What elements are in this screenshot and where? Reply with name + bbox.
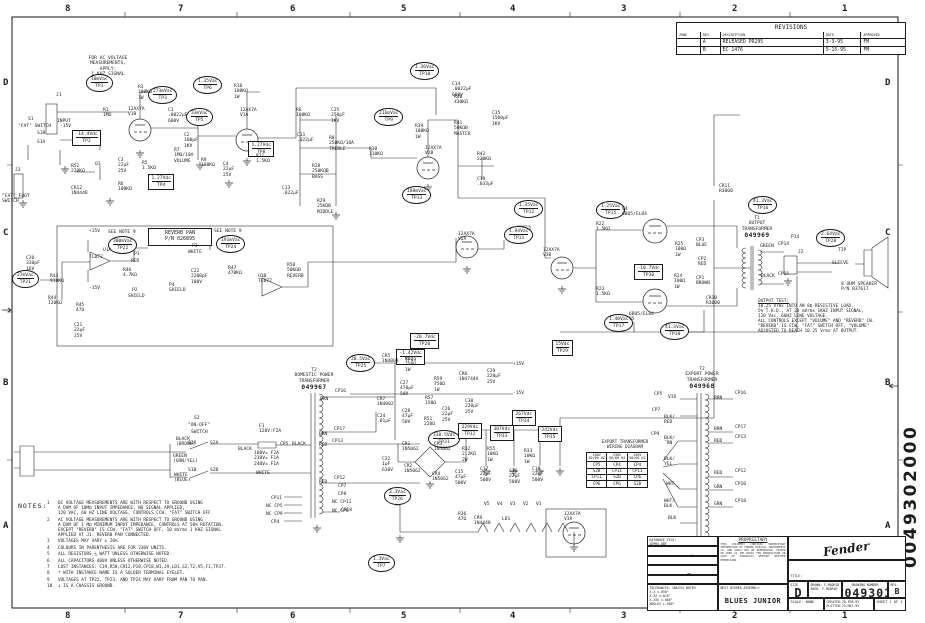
- schematic-label: CR11N5062: [402, 442, 419, 453]
- size-value: D: [791, 587, 806, 599]
- size-cell: SIZE D: [788, 581, 808, 598]
- schematic-label: "FAT" FOOTSWITCH: [2, 194, 30, 205]
- schematic-label: GREEN: [760, 244, 774, 249]
- testpoint-tp2: -14.4VdcTP2: [72, 130, 101, 146]
- schematic-label: C2622μF25V: [442, 407, 453, 423]
- zone-bottom-8: 8: [65, 611, 70, 621]
- note-item: 8* WITH INSTANCE NAME IS A SOLDER TERMIN…: [47, 571, 327, 576]
- schematic-label: S1B: [188, 468, 196, 473]
- revisions-title: REVISIONS: [676, 22, 906, 32]
- schematic-label: CP12: [334, 476, 345, 481]
- schematic-label: V46BQ5/EL84: [622, 207, 647, 218]
- schematic-label: CR121N4448: [71, 186, 88, 197]
- schematic-label: RED: [714, 439, 722, 444]
- schematic-label: C1547μF500V: [455, 470, 466, 486]
- drawing-title-cell: TITLE: SCHEMATIC DIAGRAM BLUES JUNIOR: [788, 560, 906, 581]
- schematic-label: VIO: [668, 395, 676, 400]
- schematic-label: WHITE: [188, 250, 202, 255]
- schematic-label: R42220KΩ: [477, 152, 491, 163]
- schematic-label: P2: [132, 288, 138, 293]
- zone-bottom-7: 7: [178, 611, 183, 621]
- note-number: 2: [47, 518, 50, 523]
- schematic-label: S1: [28, 117, 34, 122]
- zone-bottom-3: 3: [621, 611, 626, 621]
- revision-cell: 3-3-95: [824, 39, 862, 46]
- testpoint-tp11: 1.94VacTP11: [504, 226, 533, 244]
- schematic-label: -15V: [513, 391, 524, 396]
- notes-heading: NOTES:: [18, 502, 47, 510]
- schematic-label: +15V: [513, 362, 524, 367]
- schematic-label: R6100KΩ: [118, 182, 132, 193]
- revisions-header-cell: DATE: [824, 32, 862, 38]
- export-wiring-table: 100V50/60 HZ230V50/60 HZ240V50/60 HZCP5C…: [586, 452, 648, 488]
- schematic-label: RED: [714, 471, 722, 476]
- zone-right-B: B: [885, 378, 890, 388]
- revisions-header-cell: APPROVED: [861, 32, 905, 38]
- schematic-label: R51.5KΩ: [142, 161, 156, 172]
- export-table-cell: CP6: [607, 481, 627, 487]
- schematic-label: C222200pF100V: [191, 269, 208, 285]
- testpoint-tp3: 273mVacTP3: [148, 86, 177, 104]
- zone-bottom-2: 2: [732, 611, 737, 621]
- note-item: 3VOLTAGES MAY VARY ± 20%.: [47, 539, 327, 544]
- schematic-label: CR91N4448: [474, 516, 491, 527]
- schematic-label: 8 OHM SPEAKERP/N 037617: [841, 282, 877, 293]
- schematic-label: NC CP11: [332, 500, 351, 505]
- revisions-table: REVISIONSZONEREV.DESCRIPTIONDATEAPPROVED…: [676, 22, 906, 55]
- schematic-label: P1: [134, 252, 140, 257]
- schematic-label: C2100pF1KV: [184, 133, 198, 149]
- schematic-label: -15V: [60, 124, 71, 129]
- schematic-label: BLK/RED: [664, 415, 675, 426]
- next-higher-assembly-label: NEXT HIGHER ASSEMBLY:: [721, 586, 786, 590]
- schematic-label: BLK: [668, 516, 676, 521]
- schematic-label: C422μF25V: [223, 162, 234, 178]
- schematic-label: CR10R3000: [706, 296, 720, 307]
- schematic-label: S2B: [210, 468, 218, 473]
- schematic-label: R30110KΩ: [369, 147, 383, 158]
- schematic-label: C1822μF500V: [532, 467, 543, 483]
- drawing-number-cell: DRAWING NUMBER 049301: [842, 581, 888, 598]
- schematic-label: R3647Ω: [458, 512, 466, 523]
- drawn-by: DRAWN: F.MADRID: [811, 583, 840, 587]
- schematic-label: R464.7KΩ: [123, 268, 137, 279]
- next-higher-assembly-value: BLUES JUNIOR: [721, 597, 786, 605]
- testpoint-tp26: 3.3VacTP26: [384, 487, 411, 505]
- note-number: 3: [47, 539, 50, 544]
- revisions-header-cell: ZONE: [677, 32, 701, 38]
- schematic-label: C322μF25V: [118, 158, 129, 174]
- zone-right-D: D: [885, 78, 890, 88]
- title-label: TITLE:: [791, 574, 803, 578]
- export-table-cell: CP6: [587, 481, 607, 487]
- revision-cell: EC 1476: [721, 47, 824, 54]
- approved-cell: APPROVED:: [647, 565, 718, 575]
- revision-cell: A: [701, 39, 721, 46]
- testpoint-tp18: 41.3VacTP18: [660, 322, 689, 340]
- schematic-label: GREEN(GRN/YEL): [173, 454, 198, 465]
- schematic-label: R221.5KΩ: [596, 222, 610, 233]
- schematic-label: R47470KΩ: [228, 266, 242, 277]
- note-number: 8: [47, 571, 50, 576]
- schematic-label: T2DOMESTIC POWERTRANSFORMER049967: [284, 368, 344, 391]
- schematic-label: CP13: [735, 435, 746, 440]
- database-file-cell: DATABASE FILE: ZEM95.DBF: [647, 536, 718, 546]
- schematic-label: BRN: [714, 396, 722, 401]
- schematic-label: C321μF630V: [382, 457, 393, 473]
- zone-bottom-6: 6: [290, 611, 295, 621]
- database-file-value: ZEM95.DBF: [650, 542, 716, 546]
- schematic-label: BLACK: [761, 274, 775, 279]
- schematic-label: R322.2KΩ2W: [462, 447, 476, 463]
- note-number: 9: [47, 578, 50, 583]
- zone-top-2: 2: [732, 4, 737, 14]
- note-number: 1: [47, 501, 50, 506]
- schematic-label: CP5: [280, 442, 288, 447]
- schematic-label: C19.033μF: [477, 177, 494, 188]
- schematic-label: CR31N5062: [434, 442, 451, 453]
- schematic-label: CP12: [735, 469, 746, 474]
- scale-cell: SCALE: NONE: [788, 598, 824, 611]
- date-cell-1: DATE:: [647, 556, 718, 565]
- schematic-label: R71MΩ/10AVOLUME: [174, 148, 193, 164]
- zone-bottom-4: 4: [510, 611, 515, 621]
- note-item: 7LOST INSTANCES: C39,R58,CR12,P18,CP18,W…: [47, 565, 327, 570]
- note-item: 1DC VOLTAGE MEASUREMENTS ARE WITH RESPEC…: [47, 501, 327, 516]
- note-number: 7: [47, 565, 50, 570]
- schematic-label: R28250KΩBBASS: [312, 164, 329, 180]
- schematic-label: C13.022μF: [282, 186, 299, 197]
- schematic-label: R40430KΩ: [454, 95, 468, 106]
- note-number: 4: [47, 546, 50, 551]
- schematic-label: F1120V:F2A: [259, 424, 281, 435]
- testpoint-tp28: 2.64VacTP28: [816, 229, 845, 247]
- schematic-label: Q1: [95, 162, 101, 167]
- revisions-header-cell: DESCRIPTION: [721, 32, 824, 38]
- schematic-label: 100V= F2A230V= F1A240V= F1A: [254, 451, 279, 467]
- testpoint-tp15: 1.25VacTP15: [596, 201, 625, 219]
- schematic-label: SWITCH: [191, 430, 208, 435]
- schematic-label: 12AX7AV1B: [128, 107, 145, 118]
- schematic-label: CP13: [332, 439, 343, 444]
- note-number: 5: [47, 552, 50, 557]
- drawn-cell: DRAWN: F.MADRID ENGR: F.MADRID: [808, 581, 842, 598]
- schematic-label: P14: [791, 235, 799, 240]
- revision-cell: B: [701, 47, 721, 54]
- export-table-header: 230V50/60 HZ: [607, 453, 627, 462]
- schematic-label: WHT/BLK: [664, 499, 675, 510]
- proprietary-cell: PROPRIETARY THIS DOCUMENT CONTAINS PROPR…: [718, 536, 788, 584]
- schematic-label: CP14: [778, 242, 789, 247]
- revisions-header-cell: REV.: [701, 32, 721, 38]
- schematic-label: TL072: [89, 255, 103, 260]
- schematic-label: CP18: [735, 499, 746, 504]
- revision-row: BEC 14765-15-95FM: [676, 47, 906, 55]
- schematic-label: T2EXPORT POWERTRANSFORMER049968: [672, 367, 732, 390]
- testpoint-tp25: 20.5VacTP25: [346, 354, 375, 372]
- note-item: 2AC VOLTAGE MEASUREMENTS ARE WITH RESPEC…: [47, 518, 327, 538]
- schematic-label: R3310KΩ1W: [524, 449, 535, 465]
- schematic-label: R25100Ω1W: [675, 242, 686, 258]
- schematic-label: V3: [510, 502, 516, 507]
- schematic-label: SEE NOTE 9: [108, 230, 136, 235]
- schematic-label: WHT: [666, 482, 674, 487]
- schematic-label: CP15: [778, 272, 789, 277]
- schematic-label: CP1BROWN: [696, 276, 710, 287]
- schematic-label: R2925KΩBMIDDLE: [317, 199, 334, 215]
- revision-cell: FM: [861, 47, 905, 54]
- schematic-label: C20330pF16V: [26, 256, 40, 272]
- revision-cell: FM: [861, 39, 905, 46]
- zone-left-C: C: [3, 228, 8, 238]
- schematic-label: CR11R3000: [719, 184, 733, 195]
- scale-value: SCALE: NONE: [791, 600, 822, 605]
- schematic-label: S2A: [210, 441, 218, 446]
- schematic-label: R8250KΩ/10ATREBLE: [329, 136, 354, 152]
- schematic-label: R44120KΩ: [48, 296, 62, 307]
- testpoint-tp35: 242VdcTP35: [538, 426, 562, 442]
- schematic-label: TIP: [838, 248, 846, 253]
- schematic-label: -15V: [89, 286, 100, 291]
- schematic-label: R3100KΩ1W: [138, 85, 152, 101]
- schematic-label: C25250pF1KV: [331, 108, 345, 124]
- next-higher-assembly-cell: NEXT HIGHER ASSEMBLY: BLUES JUNIOR: [718, 584, 788, 611]
- tolerances-cell: TOLERANCES: UNLESS NOTED X.X ±.050" X.XX…: [647, 584, 718, 611]
- title-block: DATABASE FILE: ZEM95.DBF CHECKED BY: DAT…: [647, 536, 906, 611]
- export-table-header: 240V50/60 HZ: [627, 453, 647, 462]
- proprietary-text: THIS DOCUMENT CONTAINS PROPRIETARY INFOR…: [721, 543, 786, 562]
- revision-cell: RELEASED PR295: [721, 39, 824, 46]
- note-item: 6ALL CAPACITORS 400V UNLESS OTHERWISE NO…: [47, 559, 327, 564]
- drawing-number-value: 049301: [845, 587, 886, 599]
- testpoint-tp6: 1.35VacTP6: [193, 76, 222, 94]
- plotted-date: PLOTTED:23-MAY-95: [827, 604, 872, 608]
- schematic-label: SLEEVE: [832, 261, 849, 266]
- schematic-label: 12AX7AV2A: [458, 232, 475, 243]
- schematic-label: CP7: [338, 484, 346, 489]
- schematic-label: R5510KΩ1W: [487, 447, 498, 463]
- testpoint-tp7: 1.3VacTP7: [368, 554, 395, 572]
- export-table-header: 100V50/60 HZ: [587, 453, 607, 462]
- schematic-label: BLK/YEL: [664, 457, 675, 468]
- rev-value: B: [891, 587, 904, 596]
- reverb-pan-box: REVERB PANP/N 026895: [148, 228, 212, 246]
- schematic-label: S2: [194, 416, 200, 421]
- schematic-label: R5050KΩBREVERB: [287, 263, 304, 279]
- date-cell-2: DATE:: [647, 575, 718, 584]
- schematic-label: 12AX7AV3B: [543, 248, 560, 259]
- schematic-label: C27470μF50V: [400, 381, 414, 397]
- revisions-header-row: ZONEREV.DESCRIPTIONDATEAPPROVED: [676, 32, 906, 39]
- schematic-label: S1A: [37, 140, 45, 145]
- schematic-label: V1: [536, 502, 542, 507]
- schematic-label: BRN: [320, 397, 328, 402]
- schematic-label: CR71N4002: [377, 397, 394, 408]
- checked-by-cell: CHECKED BY:: [647, 546, 718, 556]
- note-number: 10: [47, 584, 52, 589]
- schematic-label: CP7: [652, 408, 660, 413]
- schematic-label: C1622μF500V: [509, 469, 520, 485]
- tolerance-line: ANGLES ±.500°: [650, 602, 716, 606]
- schematic-label: +15V: [89, 229, 100, 234]
- testpoint-tp10: 1.36VacTP10: [410, 62, 439, 80]
- schematic-label: P4SHIELD: [169, 283, 186, 294]
- schematic-label: R231.5KΩ: [596, 287, 610, 298]
- testpoint-tp33: 307VdcTP33: [490, 425, 514, 441]
- zone-top-1: 1: [842, 4, 847, 14]
- schematic-label: R9100KΩ: [201, 158, 215, 169]
- revision-cell: [677, 47, 701, 54]
- testpoint-tp20: -20.7VdcTP20: [410, 333, 439, 349]
- schematic-label: R51220Ω: [424, 417, 435, 428]
- testpoint-tp9: 216mVacTP9: [374, 108, 403, 126]
- schematic-label: V2: [523, 502, 529, 507]
- schematic-label: S1A: [188, 441, 196, 446]
- testpoint-tp21: 27mVacTP21: [12, 270, 39, 288]
- notes-list: 1DC VOLTAGE MEASUREMENTS ARE WITH RESPEC…: [47, 501, 327, 591]
- zone-right-C: C: [885, 228, 890, 238]
- zone-left-A: A: [3, 521, 8, 531]
- schematic-label: R111.5KΩ: [256, 154, 270, 165]
- testpoint-tp32: 329VdcTP32: [458, 423, 482, 439]
- zone-bottom-1: 1: [842, 611, 847, 621]
- schematic-label: CP8: [338, 492, 346, 497]
- schematic-label: BRN: [714, 427, 722, 432]
- schematic-label: R52750Ω1W: [405, 357, 416, 373]
- fender-logo: Fender: [822, 538, 870, 558]
- sheet-of: SHEET 1 OF 1: [877, 600, 904, 605]
- zone-left-D: D: [3, 78, 8, 88]
- schematic-label: R24100Ω1W: [674, 274, 685, 290]
- schematic-label: C30220μF25V: [465, 399, 479, 415]
- schematic-label: CP17: [334, 427, 345, 432]
- schematic-label: R52220KΩ: [71, 164, 85, 175]
- schematic-label: S1B: [37, 131, 45, 136]
- note-number: 6: [47, 559, 50, 564]
- schematic-label: CP3BLUE: [696, 238, 707, 249]
- zone-left-B: B: [3, 378, 8, 388]
- schematic-label: CP2RED: [698, 257, 706, 268]
- zone-right-A: A: [885, 521, 890, 531]
- note-item: 5ALL RESISTORS ¼ WATT UNLESS OTHERWISE N…: [47, 552, 327, 557]
- schematic-label: CP9: [651, 432, 659, 437]
- sheet-cell: SHEET 1 OF 1: [874, 598, 906, 611]
- testpoint-tp29: 15VdcTP29: [552, 340, 573, 356]
- schematic-label: C11.022μF: [297, 133, 314, 144]
- dates-cell: CREATED:28-FEB-95 PLOTTED:23-MAY-95: [824, 598, 874, 611]
- schematic-label: CR61N4744A: [459, 372, 478, 383]
- note-item: 10⊥ IS A CHASSIS GROUND.: [47, 584, 327, 589]
- schematic-label: C1722μF500V: [480, 467, 491, 483]
- schematic-label: V5: [484, 502, 490, 507]
- schematic-label: R4150KΩBMASTER: [454, 121, 471, 137]
- schematic-label: 12AX7AV2B: [425, 146, 442, 157]
- testpoint-tp16: 41.3VacTP16: [748, 196, 777, 214]
- note-item: 9VOLTAGES AT TP22, TP23, AND TP24 MAY VA…: [47, 578, 327, 583]
- testpoint-tp4: 1.27VdcTP4: [148, 174, 174, 190]
- schematic-label: LD1: [502, 517, 510, 522]
- rev-cell: REV. B: [888, 581, 906, 598]
- schematic-label: CR51N4003: [382, 354, 399, 365]
- testpoint-tp22: 300mVacTP22: [108, 236, 137, 254]
- schematic-label: CR41N5062: [432, 472, 449, 483]
- schematic-label: C2122μF25V: [74, 323, 85, 339]
- schematic-label: R59750Ω1W: [434, 377, 445, 393]
- schematic-label: C351500pF1KV: [492, 111, 509, 127]
- export-table-title: EXPORT TRANSFORMERWIRING DIAGRAM: [583, 441, 667, 451]
- schematic-label: R57150Ω: [425, 396, 436, 407]
- schematic-label: RED: [131, 259, 139, 264]
- schematic-label: R6100KΩ: [296, 108, 310, 119]
- zone-top-8: 8: [65, 4, 70, 14]
- testpoint-tp34: 267VdcTP34: [512, 410, 536, 426]
- testpoint-tp12: 1.35VacTP12: [514, 200, 543, 218]
- schematic-label: 12AX7AV3A: [564, 512, 581, 523]
- schematic-label: 6BQ5/EL84V5: [629, 312, 654, 323]
- schematic-label: C1.0022μF600V: [168, 108, 187, 124]
- schematic-label: CP17: [735, 425, 746, 430]
- schematic-label: NC CP6: [332, 509, 349, 514]
- schematic-label: P3: [192, 244, 198, 249]
- schematic-label: C29220μF25V: [487, 369, 501, 385]
- schematic-label: U1A: [103, 248, 111, 253]
- schematic-label: J3: [15, 168, 21, 173]
- schematic-label: V4: [497, 502, 503, 507]
- zone-top-6: 6: [290, 4, 295, 14]
- schematic-label: CP10: [735, 482, 746, 487]
- schematic-label: BLACK: [292, 442, 306, 447]
- company-cell: Fender MUSICAL INSTRUMENTS 2621 Research…: [788, 536, 906, 560]
- testpoint-tp13: 188mVacTP13: [402, 186, 431, 204]
- schematic-label: CP16: [735, 391, 746, 396]
- schematic-label: "ON-OFF": [188, 423, 210, 428]
- schematic-label: J2: [798, 250, 804, 255]
- schematic-label: CP5: [654, 392, 662, 397]
- schematic-label: J1: [56, 93, 62, 98]
- zone-top-5: 5: [401, 4, 406, 14]
- schematic-label: FOR AC VOLTAGEMEASUREMENTS,APPLY:1 KHZ S…: [82, 56, 134, 77]
- schematic-label: RED: [319, 480, 327, 485]
- schematic-label: "FAT" SWITCH: [18, 124, 51, 129]
- export-table-cell: S2B: [627, 481, 647, 487]
- schematic-label: RED: [319, 443, 327, 448]
- zone-top-3: 3: [621, 4, 626, 14]
- schematic-label: R11MΩ: [103, 108, 111, 119]
- revision-cell: [677, 39, 701, 46]
- schematic-label: C2847μF50V: [402, 409, 413, 425]
- schematic-label: GRN: [714, 485, 722, 490]
- schematic-label: BLACK: [238, 447, 252, 452]
- schematic-label: CR21N5062: [404, 464, 421, 475]
- schematic-label: U1BTL072: [258, 274, 272, 285]
- testpoint-tp24: 191mVacTP24: [216, 235, 245, 253]
- revision-cell: 5-15-95: [824, 47, 862, 54]
- schematic-label: BRN: [319, 432, 327, 437]
- schematic-label: CP16: [335, 389, 346, 394]
- schematic-label: R39100KΩ1W: [415, 124, 429, 140]
- zone-top-4: 4: [510, 4, 515, 14]
- schematic-label: SHIELD: [128, 294, 145, 299]
- testpoint-tp5: 33mVacTP5: [186, 108, 213, 126]
- zone-bottom-5: 5: [401, 611, 406, 621]
- zone-top-7: 7: [178, 4, 183, 14]
- schematic-label: OUTPUT TEST:10.25 Vrms INTO AN 8Ω RESIST…: [758, 300, 874, 335]
- schematic-label: R10100KΩ1W: [234, 84, 248, 100]
- revision-row: ARELEASED PR2953-3-95FM: [676, 39, 906, 47]
- testpoint-tp30: -10.7VdcTP30: [634, 264, 663, 280]
- schematic-label: R43910KΩ: [50, 274, 64, 285]
- schematic-label: R4547Ω: [76, 303, 84, 314]
